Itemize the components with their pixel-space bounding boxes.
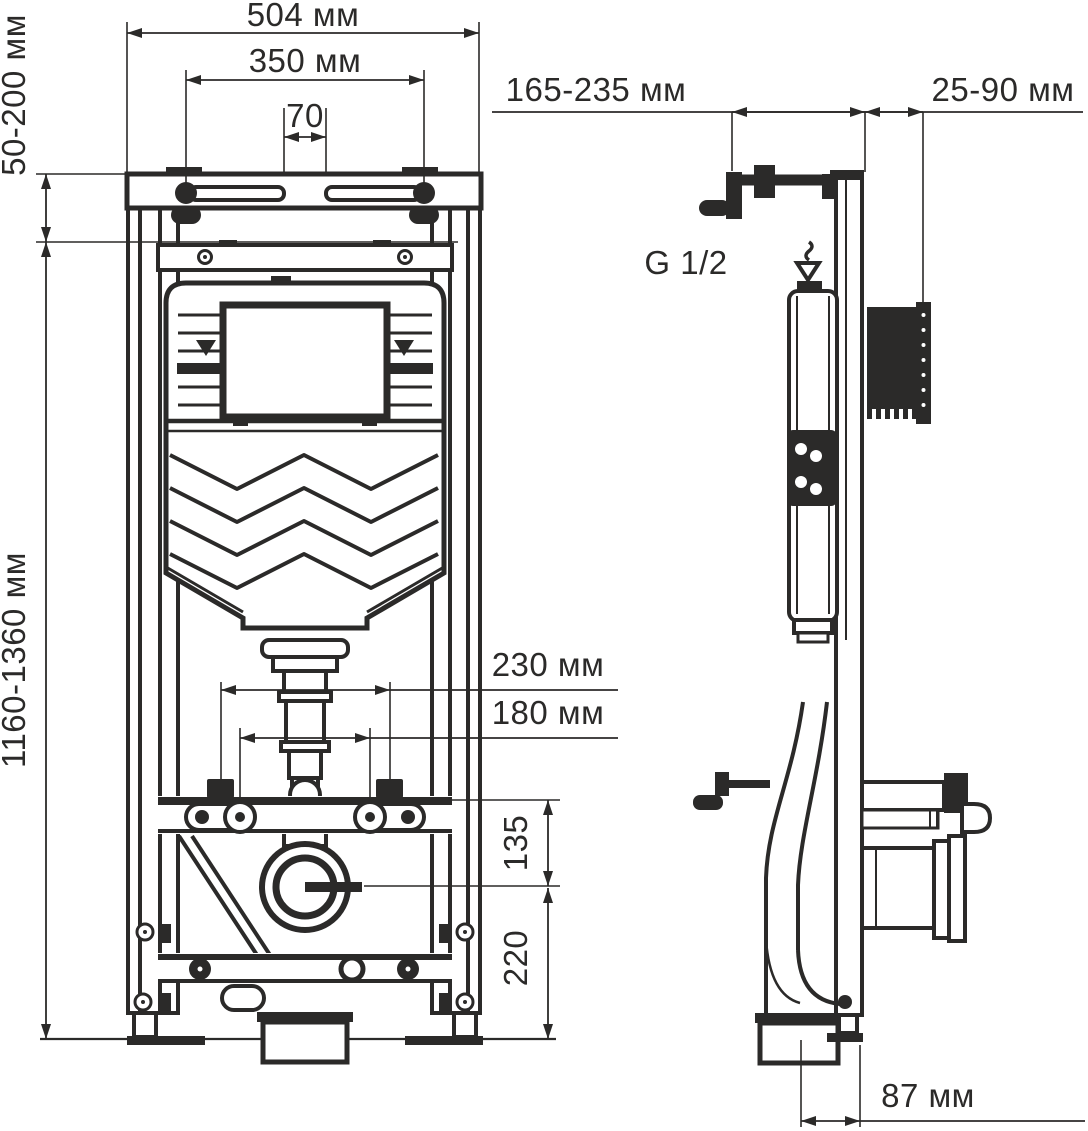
side-frame-column — [836, 173, 862, 1015]
rail-bolt-left — [175, 182, 197, 204]
drain-stub-side — [760, 1023, 838, 1063]
dim-inlet-depth: 165-235 мм — [506, 71, 687, 108]
stop-valve-icon — [699, 200, 730, 216]
installation-frame-drawing: 504 мм 350 мм 70 50-200 мм 1160-1360 мм … — [0, 0, 1088, 1131]
dim-bolt-spacing: 350 мм — [249, 42, 362, 79]
dim-height-range: 1160-1360 мм — [0, 552, 32, 768]
dim-plug-spacing: 230 мм — [492, 646, 605, 683]
flush-valve-block — [787, 430, 837, 506]
outlet-connector-side — [862, 836, 965, 941]
dim-stud-spacing: 180 мм — [492, 694, 605, 731]
water-inlet — [699, 165, 837, 219]
bottom-bar — [158, 953, 452, 1010]
side-view — [693, 165, 990, 1063]
water-thread-label: G 1/2 — [644, 244, 727, 281]
rail-bolt-right — [413, 182, 435, 204]
fixing-plug-right — [376, 779, 403, 798]
dim-outlet-to-studs: 135 — [497, 815, 534, 872]
flush-plate-bracket — [867, 302, 931, 424]
foot-right — [454, 1013, 476, 1037]
lower-valve-icon — [693, 772, 770, 810]
dim-slot-gap: 70 — [286, 97, 324, 134]
dim-overall-width: 504 мм — [247, 0, 360, 33]
water-flow-icon — [797, 242, 822, 293]
drain-stub-front — [257, 1012, 353, 1062]
diagonal-strut — [179, 836, 270, 955]
upper-crossbar — [158, 240, 452, 270]
cistern-front — [166, 276, 444, 628]
dim-wall-gap: 25-90 мм — [932, 71, 1075, 108]
rail-slot-right — [326, 187, 420, 200]
front-view — [40, 167, 556, 1062]
technical-drawing-canvas: 504 мм 350 мм 70 50-200 мм 1160-1360 мм … — [0, 0, 1088, 1131]
dim-top-adjust: 50-200 мм — [0, 14, 32, 176]
toilet-studs-side — [862, 773, 990, 832]
fixing-plug-left — [207, 779, 234, 798]
access-window — [223, 305, 387, 417]
waste-outlet-front — [262, 844, 362, 930]
foot-left — [134, 1013, 156, 1037]
rail-slot-left — [190, 187, 284, 200]
dim-outlet-offset: 87 мм — [881, 1077, 975, 1114]
top-rail — [127, 167, 481, 224]
dim-outlet-height: 220 — [497, 930, 534, 987]
cistern-side — [787, 291, 837, 642]
